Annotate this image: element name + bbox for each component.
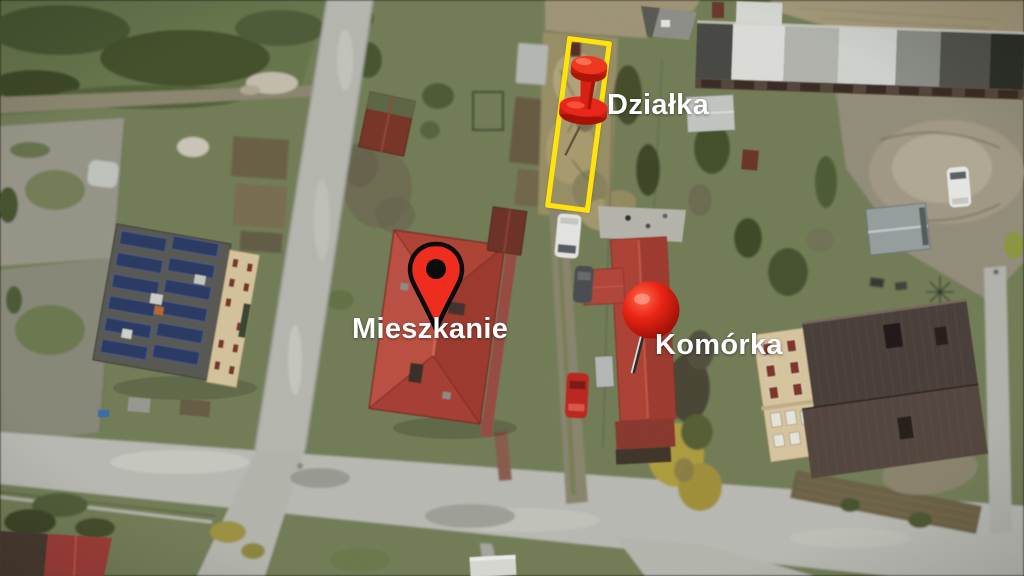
- label-komorka: Komórka: [655, 330, 783, 360]
- label-mieszkanie: Mieszkanie: [352, 314, 508, 344]
- label-dzialka: Działka: [607, 90, 709, 120]
- grain-overlay: [0, 0, 1024, 576]
- aerial-scene: [0, 0, 1024, 576]
- annotated-aerial-photo: Działka Mieszkanie Komórka: [0, 0, 1024, 576]
